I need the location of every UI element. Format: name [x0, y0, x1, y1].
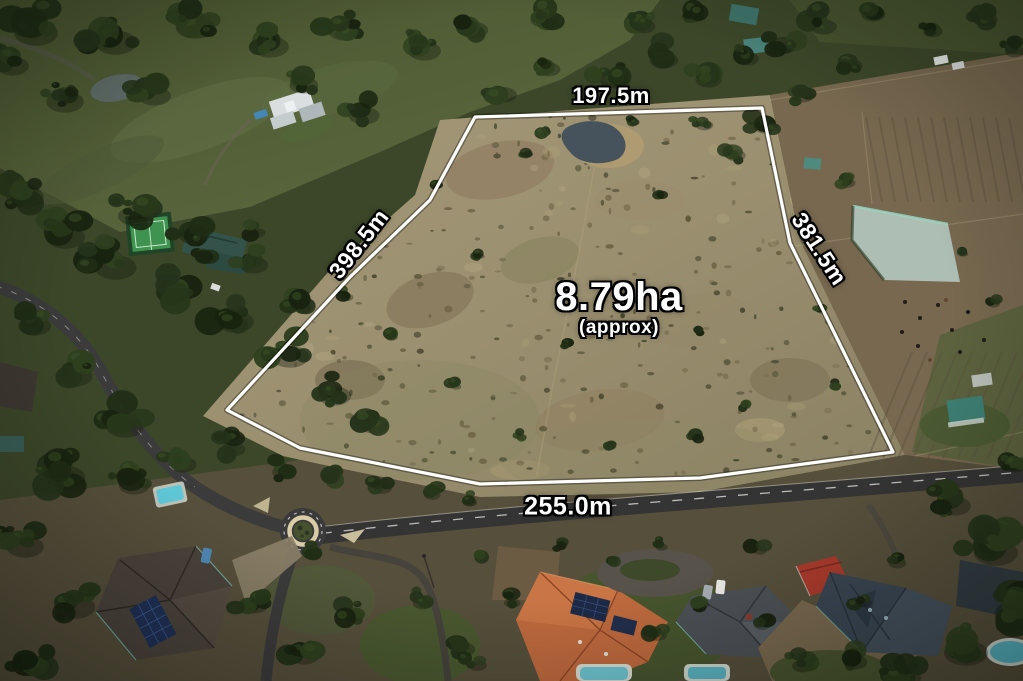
top-dimension-label: 197.5m [572, 83, 650, 109]
area-qualifier: (approx) [555, 318, 683, 337]
aerial-photo: 197.5m 398.5m 381.5m 255.0m 8.79ha (appr… [0, 0, 1023, 681]
scene-svg [0, 0, 1023, 681]
area-value: 8.79ha [555, 277, 683, 318]
area-label: 8.79ha (approx) [555, 277, 683, 337]
vignette [0, 0, 1023, 681]
bottom-dimension-label: 255.0m [524, 493, 612, 522]
